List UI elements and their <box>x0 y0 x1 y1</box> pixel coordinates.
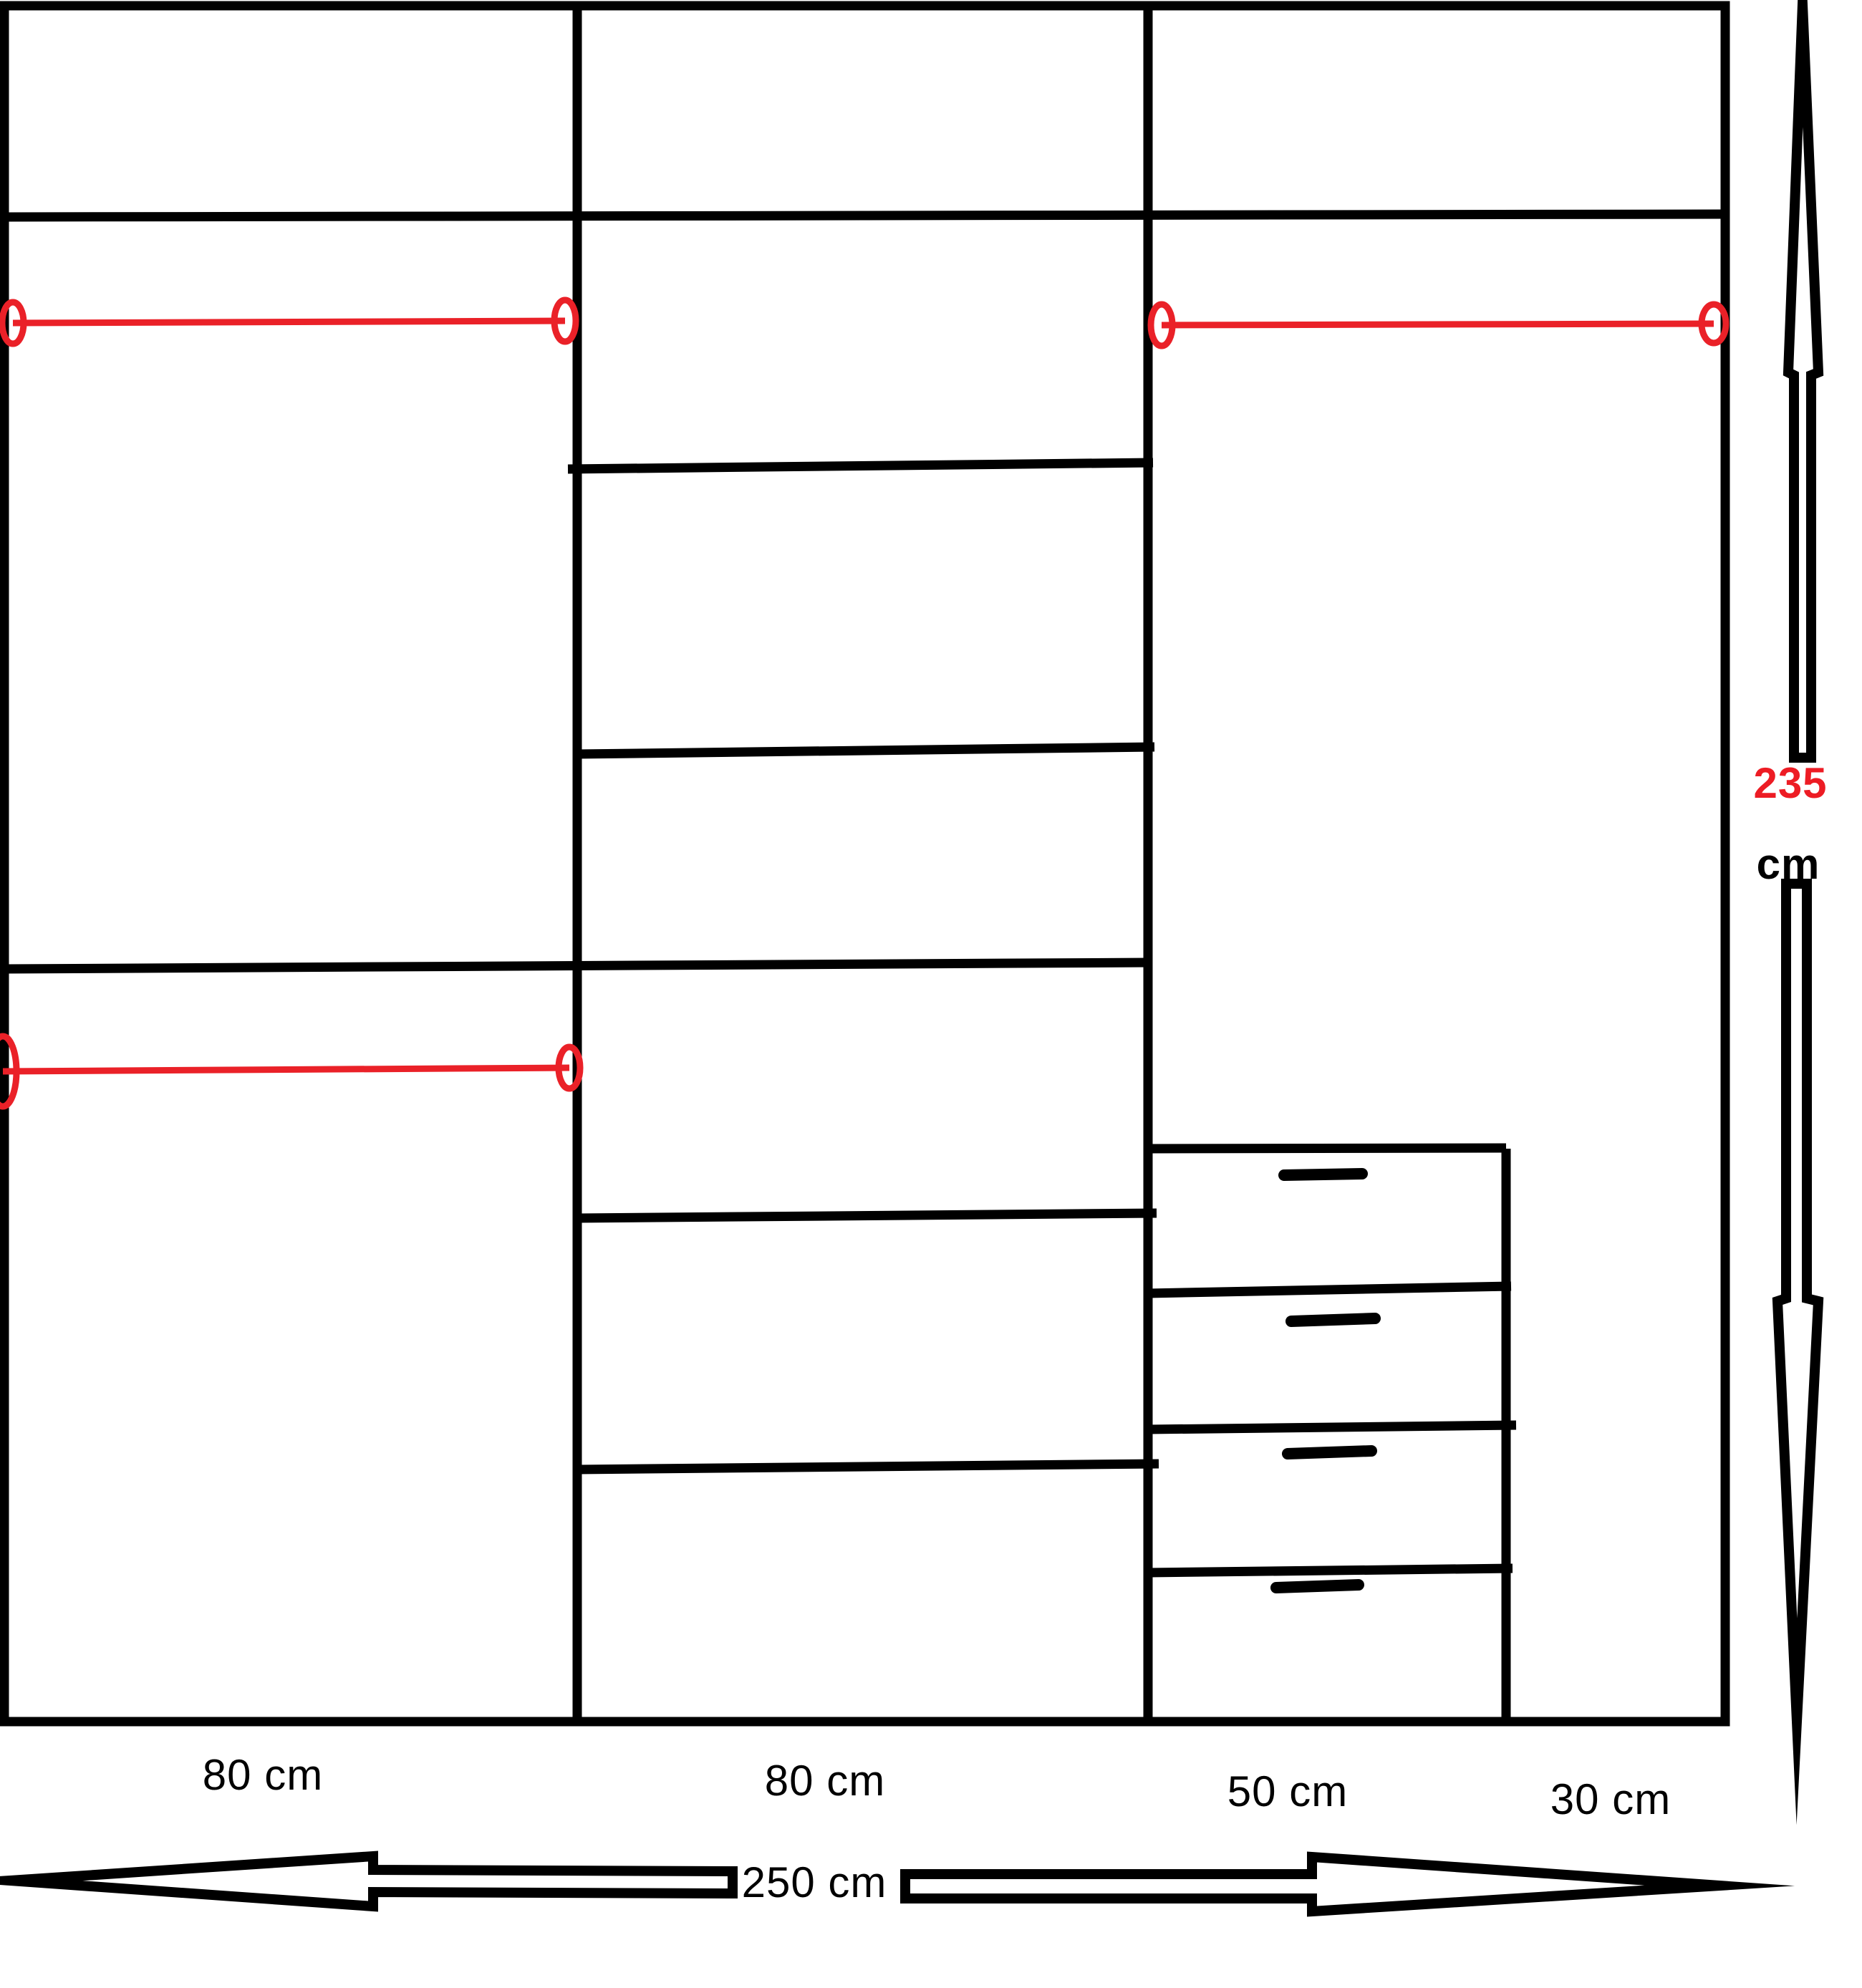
height-down-arrow <box>1777 884 1818 1722</box>
drawer-handle-2 <box>1291 1318 1375 1321</box>
section-width-label-3: 50 cm <box>1227 1770 1348 1813</box>
drawer-unit-top-edge <box>1148 1148 1506 1149</box>
height-value-label: 235 <box>1753 762 1827 805</box>
section-width-label-2: 80 cm <box>765 1760 885 1803</box>
shelf-middle-1 <box>568 463 1153 469</box>
wardrobe-elevation-diagram: 80 cm 80 cm 50 cm 30 cm 250 cm 235 cm <box>0 0 1862 1988</box>
hanging-rail-right-upper <box>1162 324 1714 325</box>
drawer-separator-2 <box>1148 1425 1516 1429</box>
drawer-handle-3 <box>1288 1451 1371 1454</box>
shelf-middle-2 <box>577 747 1154 754</box>
section-width-label-1: 80 cm <box>203 1754 323 1797</box>
total-width-label: 250 cm <box>742 1861 887 1904</box>
height-unit-label: cm <box>1757 843 1820 886</box>
drawer-separator-3 <box>1148 1568 1513 1573</box>
shelf-middle-4 <box>577 1464 1159 1470</box>
wardrobe-drawing <box>0 0 1862 1988</box>
height-up-arrow <box>1788 4 1818 758</box>
shelf-top-full-width <box>6 214 1725 217</box>
drawer-handle-4 <box>1276 1585 1359 1588</box>
hanging-rail-left-lower <box>3 1068 569 1071</box>
shelf-middle-3 <box>577 1213 1157 1218</box>
hanging-rail-left-upper <box>13 321 565 323</box>
shelf-long-left-middle <box>4 962 1150 969</box>
width-right-arrow <box>905 1857 1719 1911</box>
section-width-label-4: 30 cm <box>1550 1778 1671 1821</box>
width-left-arrow <box>10 1856 733 1906</box>
drawer-handle-1 <box>1284 1174 1362 1175</box>
drawer-separator-1 <box>1148 1286 1511 1293</box>
